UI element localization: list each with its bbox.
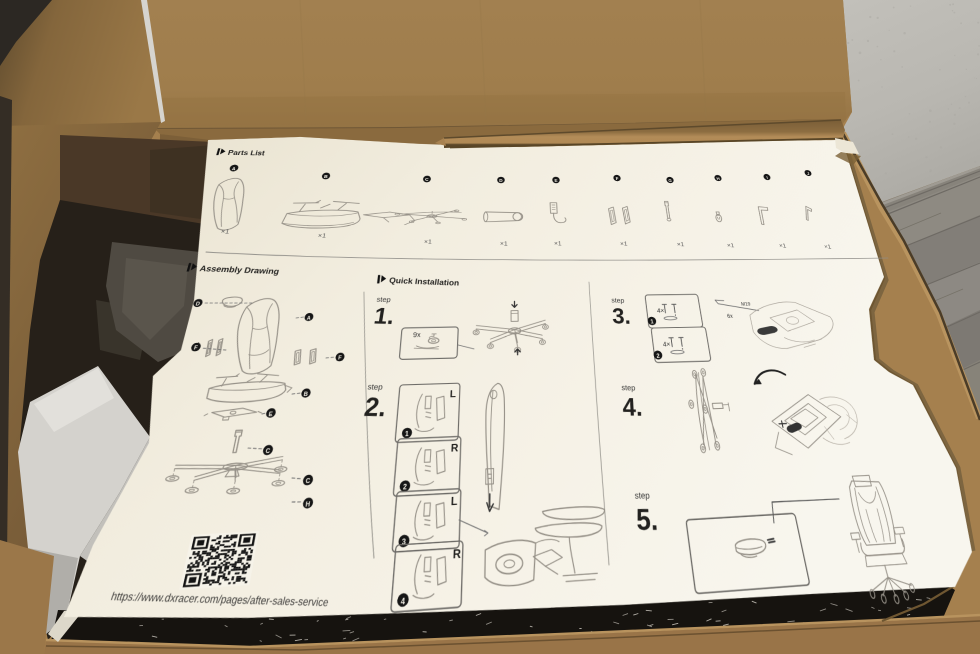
svg-text:M19: M19: [741, 301, 752, 306]
svg-text:step: step: [376, 296, 392, 304]
svg-text:1.: 1.: [372, 304, 396, 330]
svg-text:×1: ×1: [424, 239, 433, 246]
svg-text:step: step: [621, 384, 636, 393]
svg-text:3.: 3.: [612, 305, 632, 329]
svg-text:step: step: [367, 383, 384, 392]
svg-text:5.: 5.: [635, 505, 658, 538]
svg-text:×1: ×1: [620, 241, 629, 248]
svg-text:9x: 9x: [413, 332, 421, 339]
svg-text:4.: 4.: [622, 394, 643, 422]
svg-text:4×: 4×: [663, 342, 672, 349]
svg-text:L: L: [451, 494, 458, 508]
svg-text:×1: ×1: [554, 241, 562, 248]
svg-text:Parts List: Parts List: [227, 149, 266, 157]
svg-text:step: step: [634, 491, 650, 501]
svg-text:E: E: [554, 179, 557, 184]
svg-text:F: F: [615, 177, 618, 182]
svg-text:×1: ×1: [677, 242, 686, 249]
svg-text:×1: ×1: [500, 241, 508, 248]
svg-text:L: L: [450, 388, 457, 400]
svg-text:D: D: [499, 179, 503, 184]
svg-text:step: step: [611, 297, 625, 305]
svg-text:4×: 4×: [657, 308, 666, 315]
svg-text:R: R: [451, 442, 459, 455]
svg-text:R: R: [453, 547, 462, 562]
svg-text:2.: 2.: [362, 394, 388, 423]
